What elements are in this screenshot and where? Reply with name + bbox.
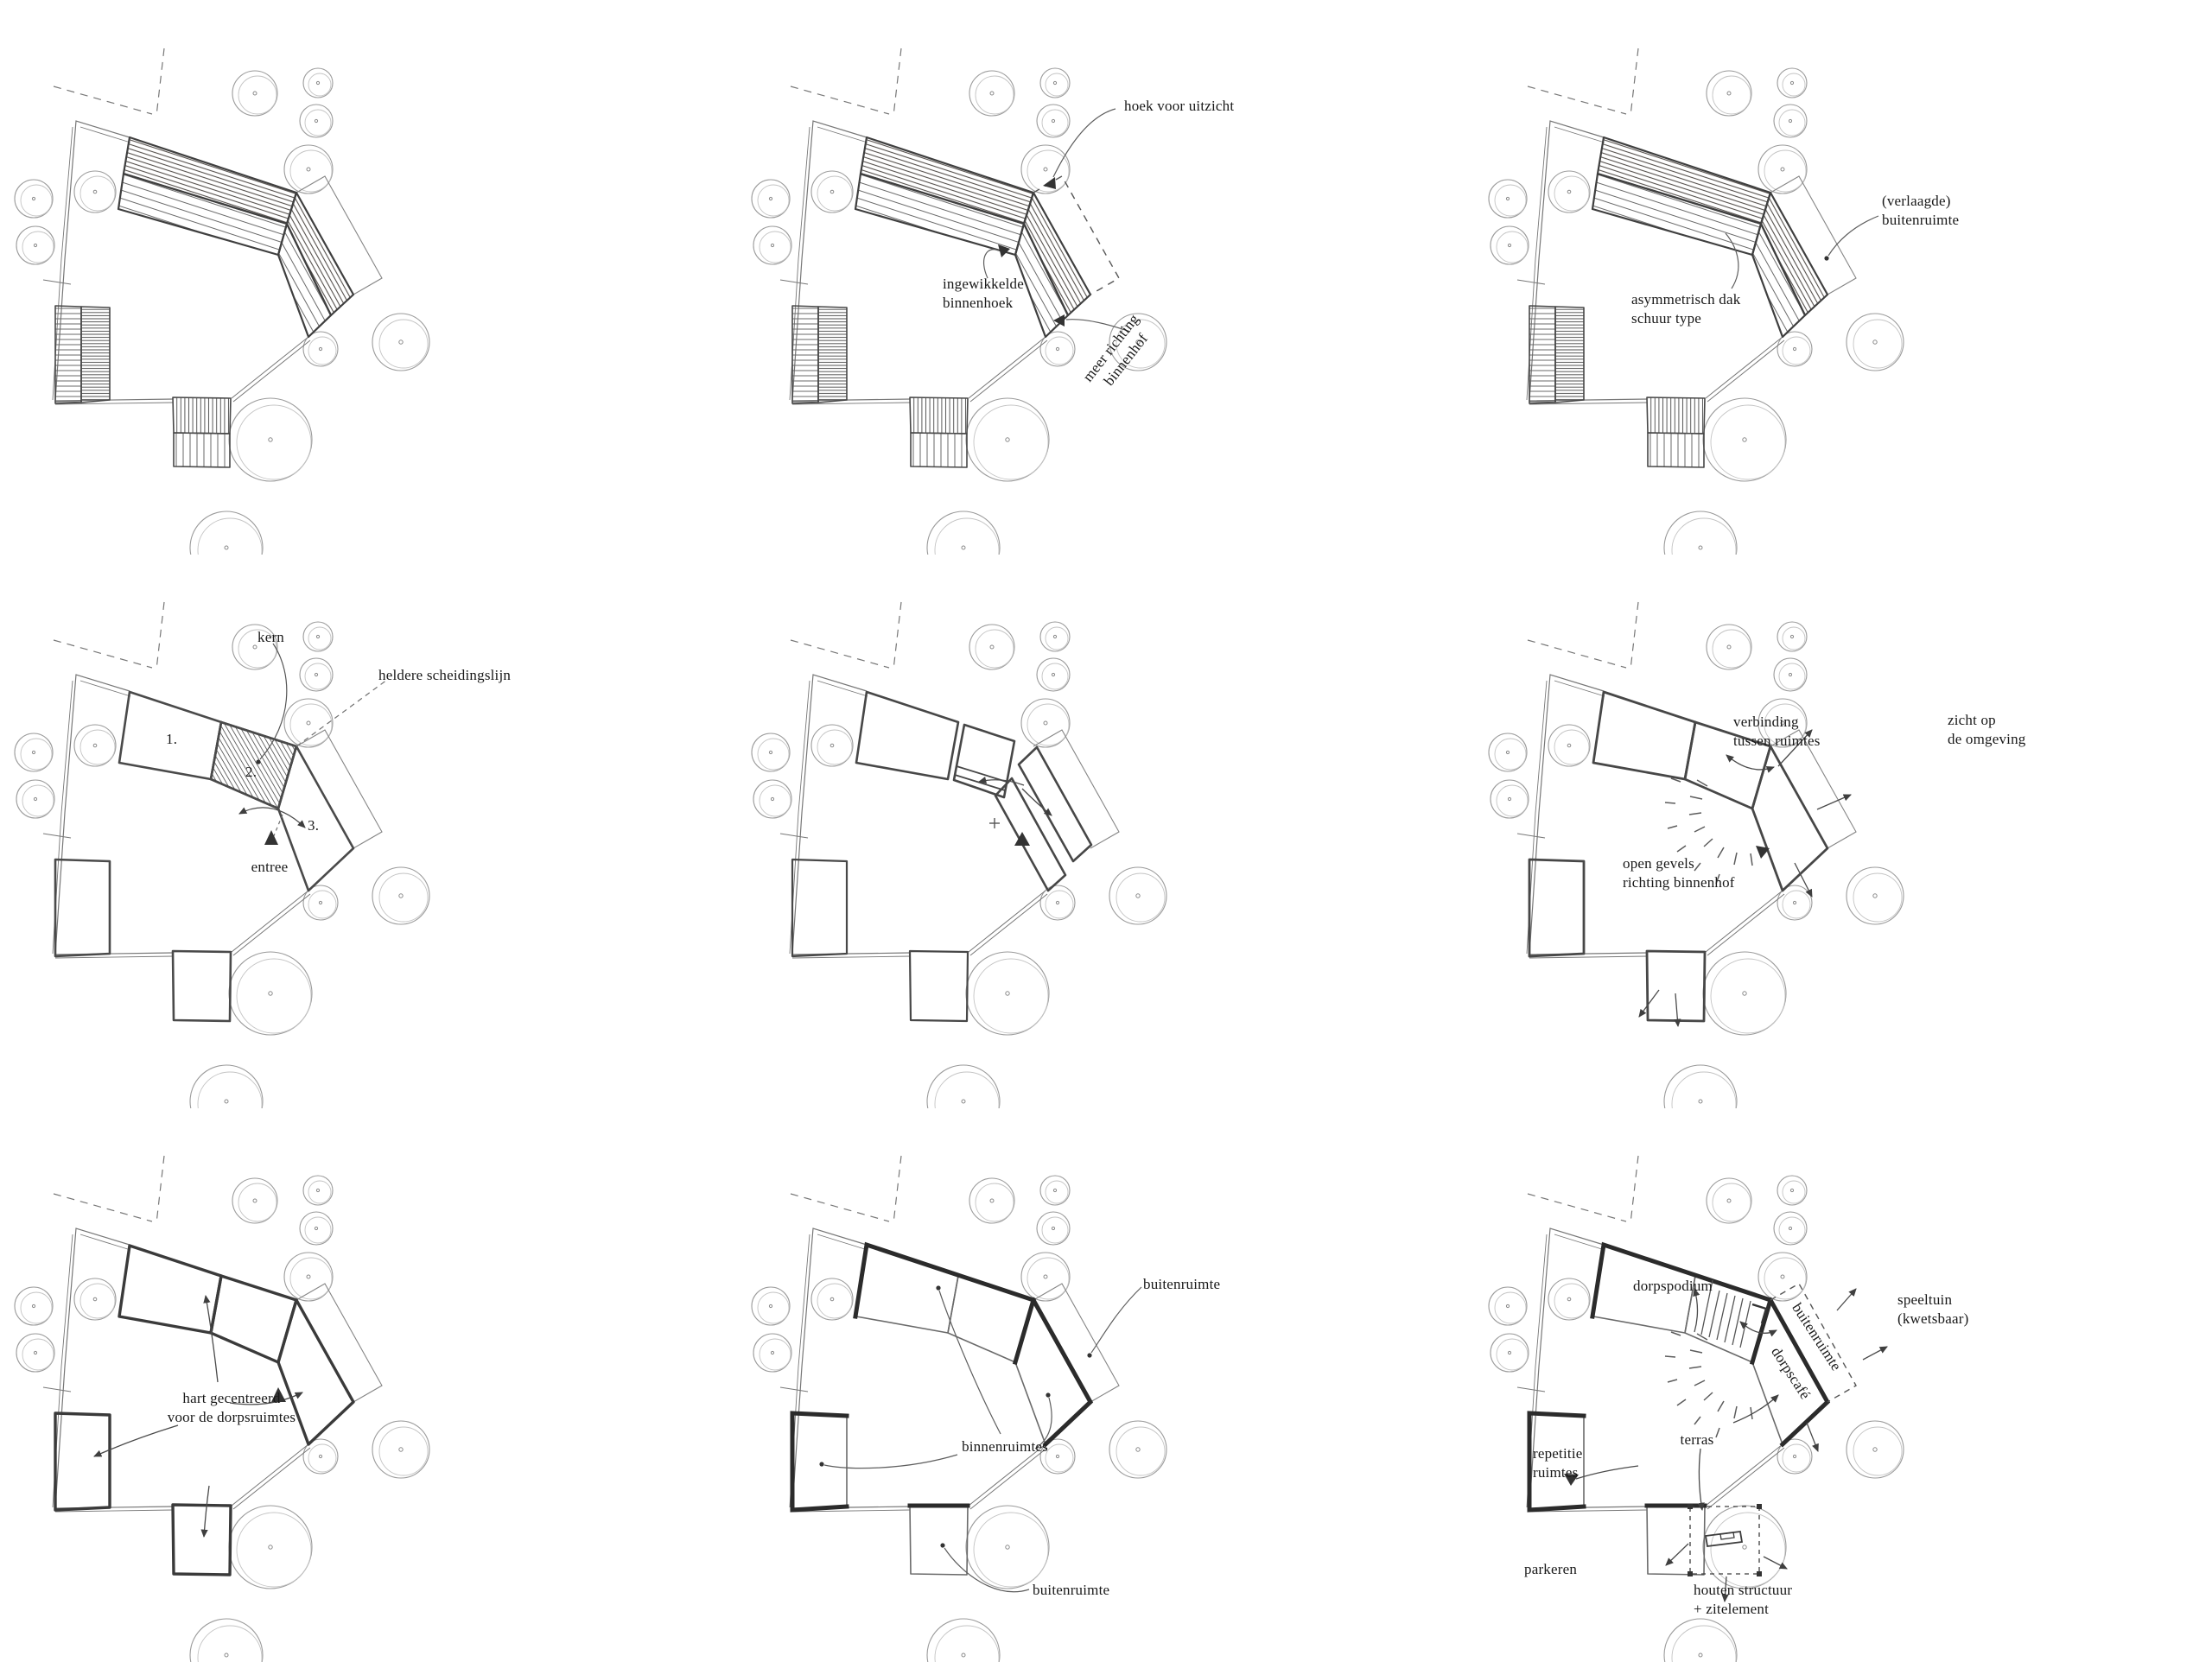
terras-ticks [1665,1332,1752,1437]
site-plan-sketch-9 [1474,1107,2212,1662]
site-plan-sketch-7 [0,1107,738,1662]
site-plan-sketch-8 [737,1107,1475,1662]
label-hoek-voor-uitzicht: hoek voor uitzicht [1124,97,1234,116]
houten-structuur [1688,1504,1762,1576]
room-outlines [55,692,353,1021]
hatched-roofs [55,137,353,467]
panel-concept-3: (verlaagde) buitenruimte asymmetrisch da… [1474,0,2212,555]
trees [752,622,1166,1108]
label-heldere-scheidingslijn: heldere scheidingslijn [378,666,511,685]
label-nummer-2: 2. [245,763,257,782]
site-corner [296,1284,382,1402]
label-verlaagde-buitenruimte: (verlaagde) buitenruimte [1882,192,1959,231]
label-houten-structuur: houten structuur + zitelement [1694,1581,1792,1620]
label-zicht-op-de-omgeving: zicht op de omgeving [1948,711,2026,750]
programma-arrows [1564,1289,1887,1602]
label-dorpspodium: dorpspodium [1633,1277,1713,1296]
site-plan-sketch-1 [0,0,738,555]
label-open-gevels: open gevels richting binnenhof [1623,854,1735,893]
site-plan-sketch-5 [737,554,1475,1108]
site-plan-sketch-2 [737,0,1475,555]
room-outlines [792,1246,1090,1575]
panel-concept-5 [737,554,1475,1108]
panel-concept-6: verbinding tussen ruimtes zicht op de om… [1474,554,2212,1108]
label-asymmetrisch-dak: asymmetrisch dak schuur type [1631,290,1740,329]
panel-concept-9: dorpspodium speeltuin (kwetsbaar) buiten… [1474,1107,2212,1662]
label-speeltuin: speeltuin (kwetsbaar) [1897,1291,1968,1329]
label-hart-gecentreerd: hart gecentreerd voor de dorpsruimtes [168,1389,296,1428]
connection-arrows [979,780,1052,846]
panel-concept-1 [0,0,738,555]
label-binnenruimtes: binnenruimtes [962,1437,1048,1456]
subdivided-rooms [856,692,1091,891]
panel-concept-4: kern heldere scheidingslijn 1. 2. 3. ent… [0,554,738,1108]
site-corner [1033,1284,1119,1402]
site-plan-sketch-6 [1474,554,2212,1108]
label-parkeren: parkeren [1524,1560,1577,1579]
site-boundary [780,1156,1047,1512]
label-nummer-1: 1. [166,730,177,749]
site-boundary [43,1156,310,1512]
label-verbinding-tussen-ruimtes: verbinding tussen ruimtes [1733,713,1821,752]
panel-concept-8: buitenruimte binnenruimtes buitenruimte [737,1107,1475,1662]
thick-walls [792,1245,1090,1510]
label-kern: kern [257,628,284,647]
site-corner [1033,730,1119,848]
panel-concept-2: hoek voor uitzicht ingewikkelde binnenho… [737,0,1475,555]
label-entree: entree [251,858,289,877]
site-plan-sketch-4 [0,554,738,1108]
label-buitenruimte-onder: buitenruimte [1033,1581,1109,1600]
hatched-roofs [792,137,1090,467]
sketch-sheet: hoek voor uitzicht ingewikkelde binnenho… [0,0,2212,1662]
site-boundary [1517,602,1784,958]
label-terras: terras [1681,1430,1714,1449]
side-buildings [792,860,968,1021]
label-buitenruimte-boven: buitenruimte [1143,1275,1220,1294]
label-repetitie-ruimtes: repetitie ruimtes [1533,1444,1583,1483]
panel-concept-7: hart gecentreerd voor de dorpsruimtes [0,1107,738,1662]
site-plan-sketch-3 [1474,0,2212,555]
label-ingewikkelde-binnenhoek: ingewikkelde binnenhoek [943,275,1024,314]
label-nummer-3: 3. [308,816,319,835]
